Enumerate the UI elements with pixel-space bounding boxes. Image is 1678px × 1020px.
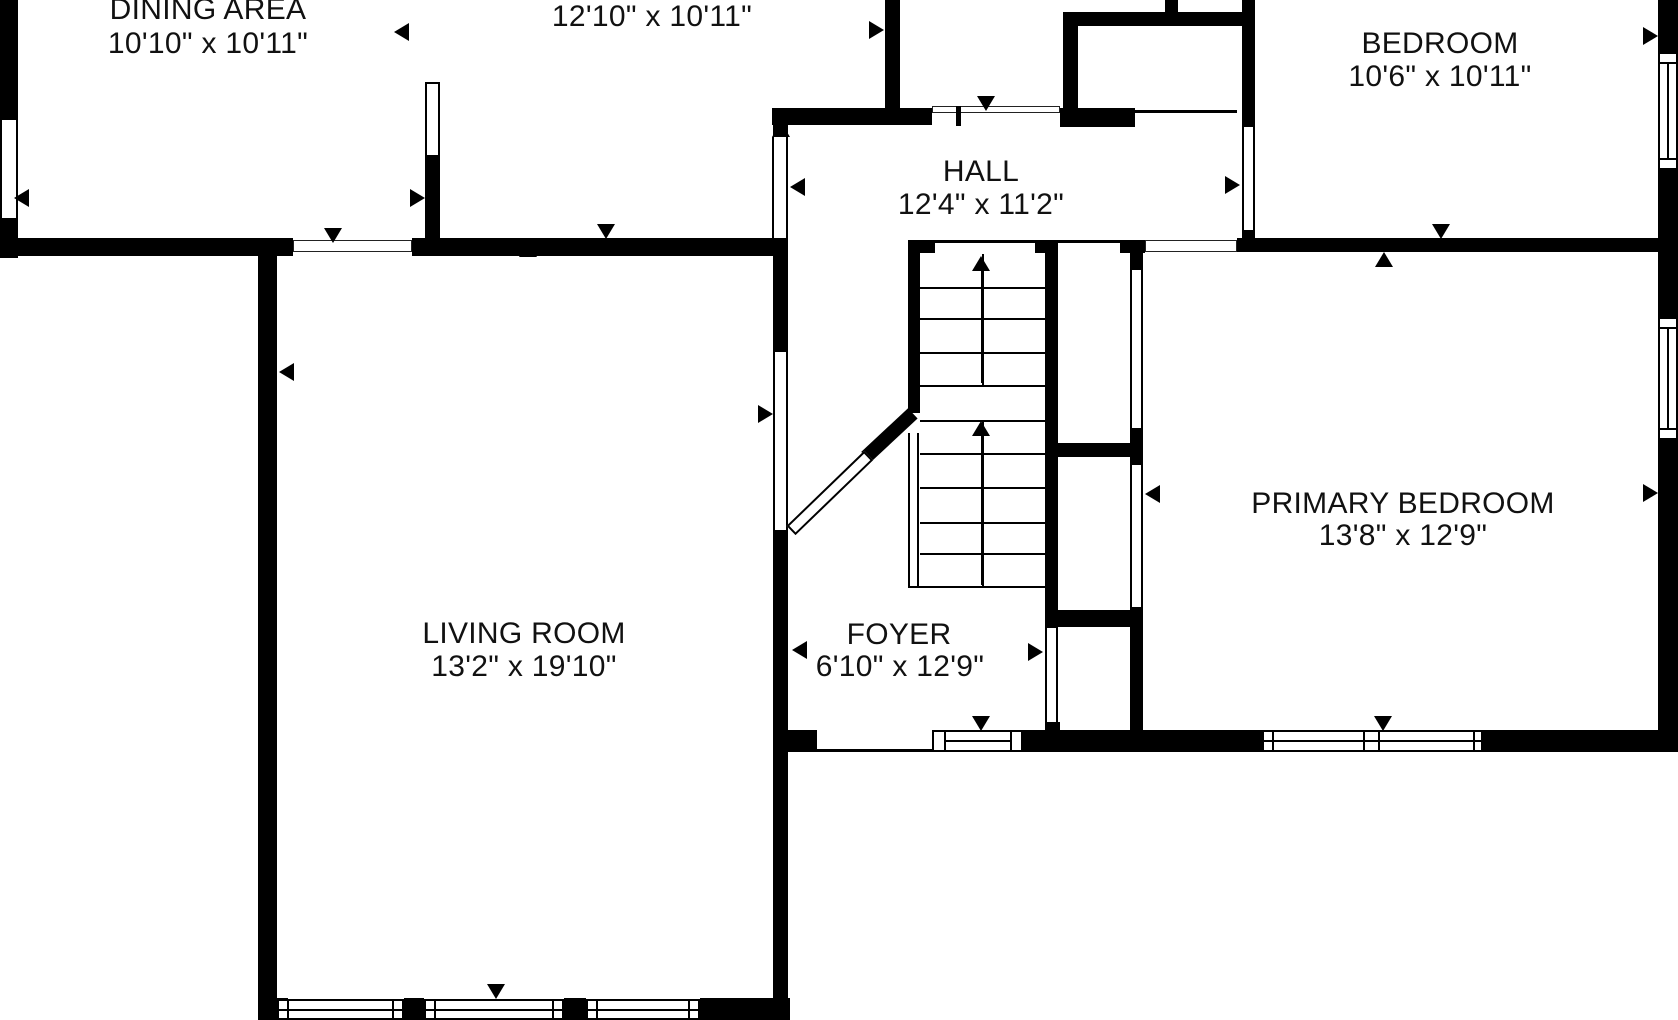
room-label-primary-dims: 13'8" x 12'9"	[1319, 519, 1487, 553]
direction-arrow-icon	[1225, 176, 1240, 194]
direction-arrow-icon	[869, 21, 884, 39]
direction-arrow-icon	[1643, 484, 1658, 502]
direction-arrow-icon	[1375, 252, 1393, 267]
door-jamb	[1242, 127, 1244, 230]
closet-opening-line	[1058, 240, 1120, 243]
wall	[1130, 253, 1143, 270]
room-label-bedroom-name: BEDROOM	[1361, 27, 1518, 61]
front-door	[932, 730, 1023, 752]
door-jamb	[773, 352, 775, 530]
wall	[1483, 730, 1678, 752]
stair-opening-line	[935, 240, 1035, 243]
direction-arrow-icon	[1374, 716, 1392, 731]
room-label-dining-name: DINING AREA	[110, 0, 307, 27]
door-opening	[932, 106, 1060, 113]
wall	[1063, 12, 1255, 26]
door-jamb	[772, 137, 774, 238]
floor-plan: DINING AREA 10'10" x 10'11" 12'10" x 10'…	[0, 0, 1678, 1020]
wall	[885, 0, 900, 125]
stair-arrow-stem	[981, 435, 984, 585]
window	[424, 999, 564, 1020]
closet-door-line	[1135, 110, 1237, 113]
wall	[700, 998, 790, 1020]
door-jamb	[1141, 270, 1143, 428]
wall	[258, 250, 277, 1020]
door-opening	[1145, 240, 1237, 252]
wall	[1023, 730, 1262, 752]
room-label-bedroom-dims: 10'6" x 10'11"	[1348, 60, 1531, 94]
direction-arrow-icon	[519, 242, 537, 257]
wall	[1058, 610, 1143, 627]
wall	[1165, 0, 1178, 12]
room-label-primary-name: PRIMARY BEDROOM	[1251, 487, 1554, 521]
direction-arrow-icon	[972, 716, 990, 731]
direction-arrow-icon	[977, 96, 995, 111]
window	[277, 999, 404, 1020]
wall	[1658, 440, 1678, 752]
porch-opening	[817, 730, 932, 752]
door-jamb	[786, 352, 788, 530]
door-jamb	[1130, 270, 1132, 428]
direction-arrow-icon	[324, 228, 342, 243]
stair-bottom-line	[908, 586, 1045, 588]
direction-arrow-icon	[1643, 27, 1658, 45]
stair-up-arrow-icon	[972, 256, 990, 271]
stair-up-arrow-icon	[972, 421, 990, 436]
direction-arrow-icon	[394, 23, 409, 41]
wall	[425, 155, 440, 242]
room-label-living-name: LIVING ROOM	[422, 617, 625, 651]
door-jamb	[1045, 628, 1047, 722]
window	[1658, 317, 1678, 440]
direction-arrow-icon	[597, 224, 615, 239]
wall	[1237, 238, 1678, 252]
wall	[1120, 240, 1145, 253]
direction-arrow-icon	[772, 122, 790, 137]
wall	[1242, 0, 1255, 127]
wall	[0, 0, 18, 118]
wall	[773, 530, 788, 1020]
room-label-foyer-dims: 6'10" x 12'9"	[816, 650, 984, 684]
stair-tread	[920, 385, 1045, 387]
door-leaf	[786, 451, 873, 535]
room-label-hall-name: HALL	[943, 155, 1019, 189]
wall	[772, 108, 932, 125]
stair-rail	[908, 433, 910, 586]
direction-arrow-icon	[14, 189, 29, 207]
wall	[908, 240, 920, 413]
wall	[0, 238, 293, 256]
direction-arrow-icon	[1432, 224, 1450, 239]
wall	[412, 238, 788, 256]
door-jamb	[1056, 628, 1058, 722]
door-jamb	[786, 137, 788, 238]
door-jamb	[1130, 465, 1132, 607]
stair-rail	[917, 433, 919, 586]
wall	[773, 238, 788, 352]
wall	[1060, 108, 1135, 127]
wall	[404, 998, 424, 1020]
stair-arrow-stem	[981, 270, 984, 383]
window	[586, 999, 700, 1020]
room-label-kitchen-dims: 12'10" x 10'11"	[552, 0, 752, 34]
direction-arrow-icon	[279, 363, 294, 381]
direction-arrow-icon	[1145, 485, 1160, 503]
wall	[1658, 0, 1678, 52]
wall	[773, 730, 817, 752]
direction-arrow-icon	[792, 641, 807, 659]
room-label-living-dims: 13'2" x 19'10"	[431, 650, 616, 684]
direction-arrow-icon	[487, 984, 505, 999]
direction-arrow-icon	[410, 189, 425, 207]
room-label-hall-dims: 12'4" x 11'2"	[898, 188, 1064, 222]
direction-arrow-icon	[790, 178, 805, 196]
direction-arrow-icon	[758, 405, 773, 423]
wall	[1045, 240, 1058, 628]
room-label-foyer-name: FOYER	[847, 618, 952, 652]
wall	[1058, 443, 1143, 457]
door-opening	[293, 240, 412, 252]
room-label-dining-dims: 10'10" x 10'11"	[108, 27, 308, 61]
door-jamb	[1253, 127, 1255, 230]
direction-arrow-icon	[1028, 643, 1043, 661]
door-jamb	[1141, 465, 1143, 607]
window	[1262, 730, 1483, 752]
wall	[956, 106, 961, 126]
door-leaf	[425, 82, 440, 157]
wall	[564, 998, 586, 1020]
wall	[1658, 170, 1678, 317]
window	[1658, 52, 1678, 170]
